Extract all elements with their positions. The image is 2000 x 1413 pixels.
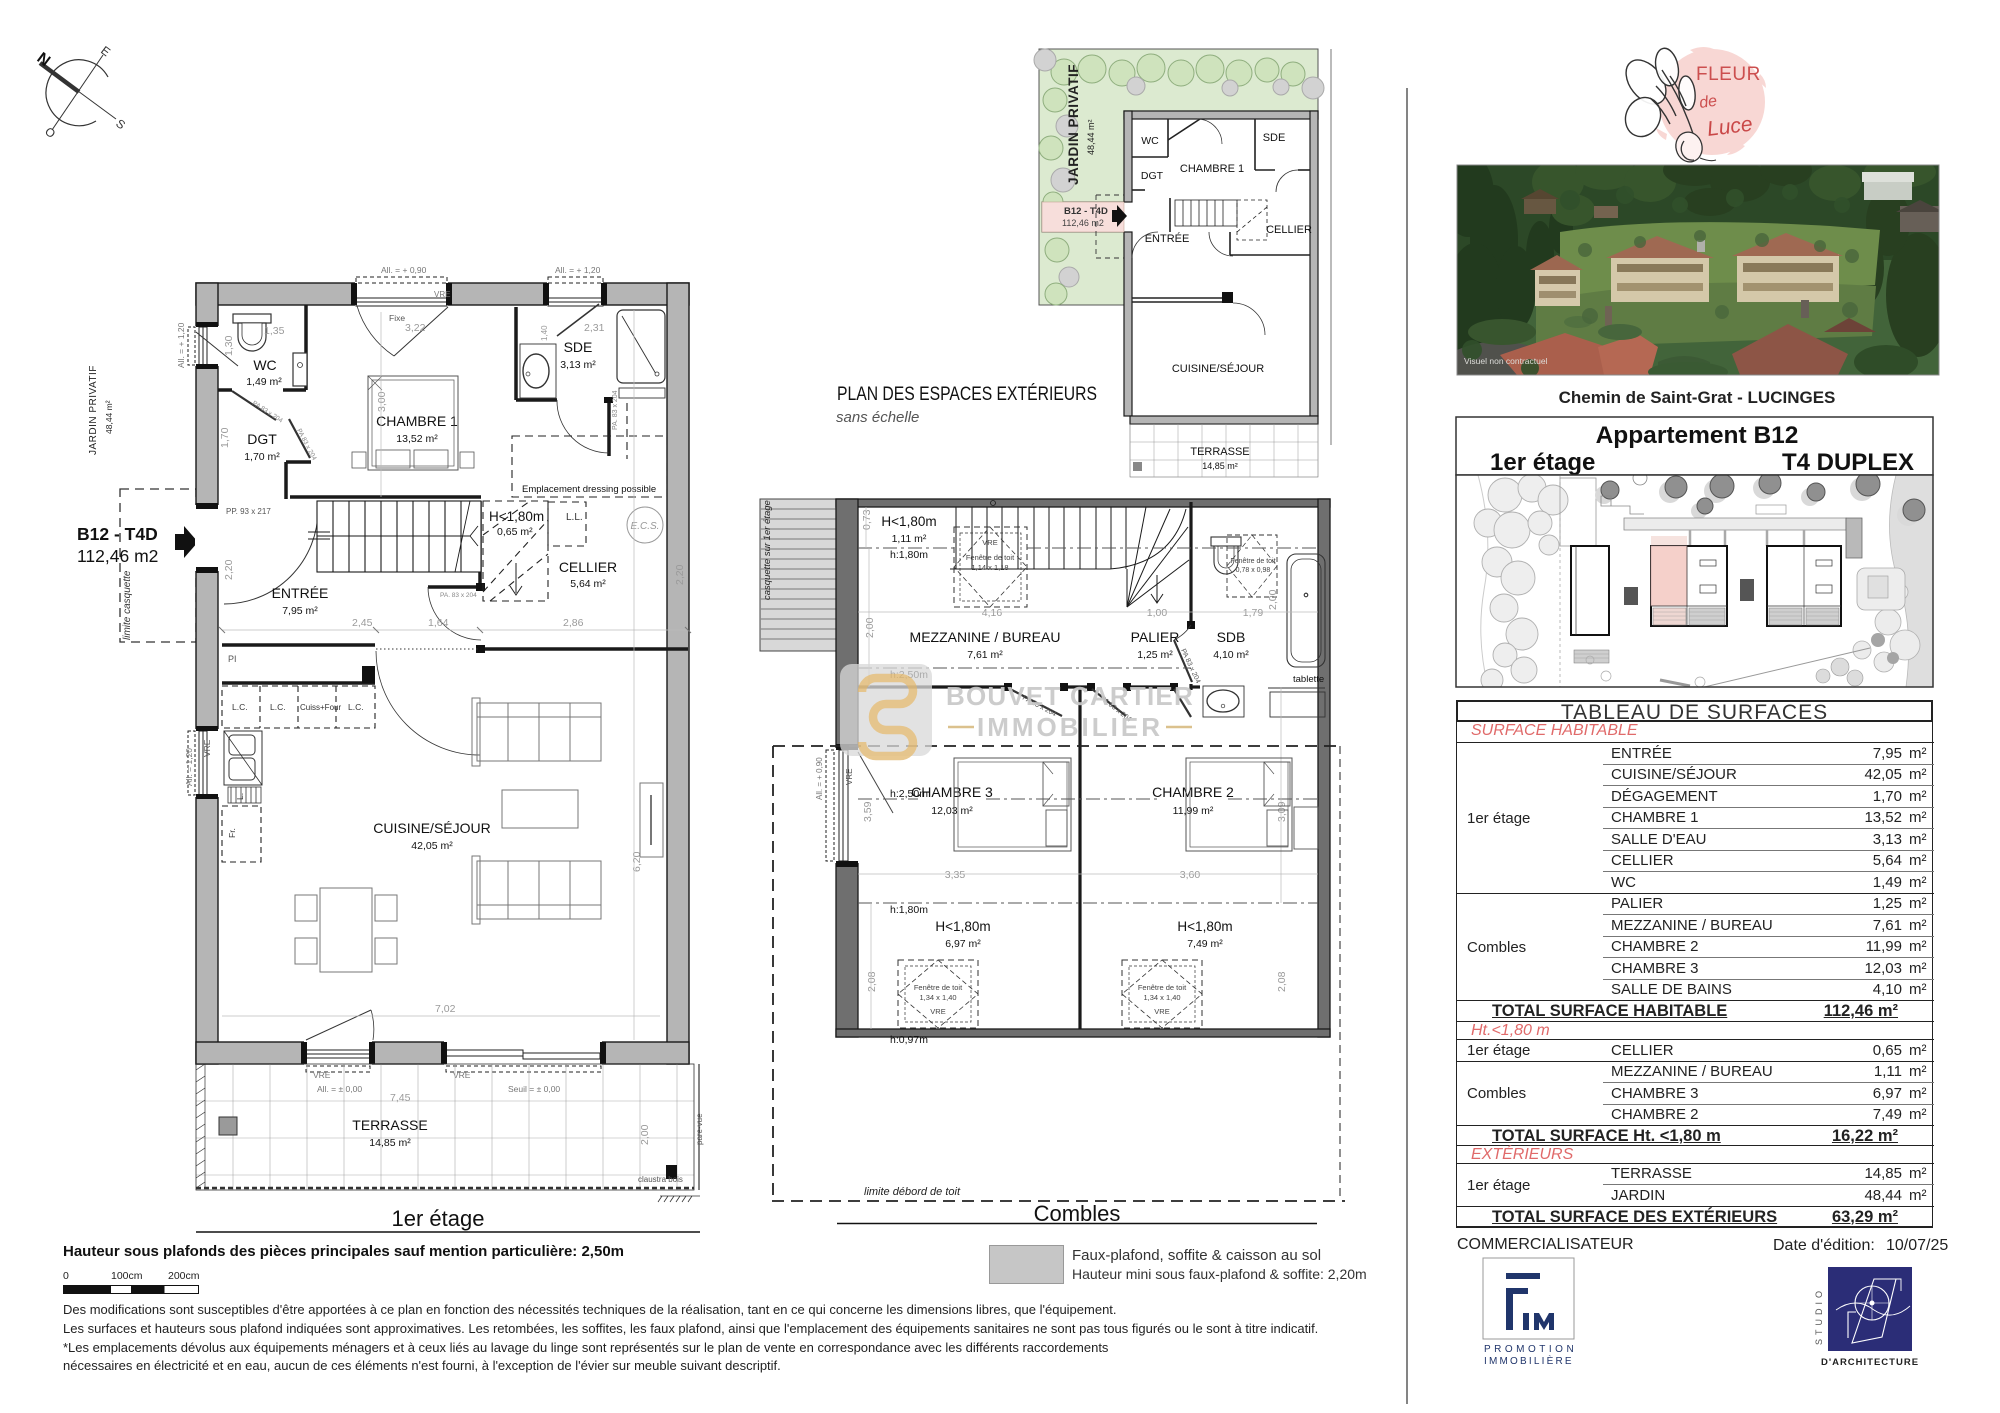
svg-text:CHAMBRE 2: CHAMBRE 2	[1152, 784, 1234, 800]
svg-text:48,44 m²: 48,44 m²	[104, 400, 114, 434]
svg-text:1,00: 1,00	[1147, 607, 1168, 619]
svg-text:Seuil = ± 0,00: Seuil = ± 0,00	[508, 1084, 560, 1094]
svg-text:DGT: DGT	[1141, 170, 1164, 182]
svg-text:Visuel non contractuel: Visuel non contractuel	[1464, 356, 1548, 366]
svg-text:All. = + 0,90: All. = + 0,90	[815, 757, 824, 800]
svg-text:0,78 x 0,98: 0,78 x 0,98	[1236, 567, 1271, 574]
svg-text:Emplacement dressing possible: Emplacement dressing possible	[522, 484, 656, 495]
svg-text:11,99 m²: 11,99 m²	[1173, 805, 1214, 817]
svg-text:2,31: 2,31	[584, 322, 605, 334]
svg-text:All. = + 1,20: All. = + 1,20	[555, 265, 601, 275]
svg-text:SDE: SDE	[564, 339, 593, 355]
svg-text:CELLIER: CELLIER	[559, 559, 617, 575]
svg-text:2,86: 2,86	[563, 617, 584, 629]
svg-text:L.: L.	[235, 793, 245, 800]
svg-text:12,03 m²: 12,03 m²	[931, 805, 973, 817]
svg-text:2,20: 2,20	[223, 559, 235, 580]
svg-text:PP. 93 x 217: PP. 93 x 217	[226, 507, 271, 516]
svg-text:h:0,97m: h:0,97m	[890, 1034, 928, 1046]
svg-text:Fenêtre de toit: Fenêtre de toit	[1230, 558, 1275, 565]
svg-text:1,25 m²: 1,25 m²	[1137, 649, 1173, 661]
svg-text:H<1,80m: H<1,80m	[881, 514, 936, 529]
svg-text:h:2,50m: h:2,50m	[890, 788, 928, 800]
svg-text:1,70: 1,70	[219, 427, 231, 448]
svg-text:VRE: VRE	[845, 769, 854, 785]
svg-text:L.C.: L.C.	[270, 702, 286, 712]
svg-text:3,35: 3,35	[945, 869, 966, 881]
svg-text:2,00: 2,00	[864, 617, 876, 638]
svg-text:T4 DUPLEX: T4 DUPLEX	[1782, 449, 1914, 476]
svg-text:PI: PI	[228, 654, 237, 664]
svg-text:H<1,80m: H<1,80m	[935, 919, 990, 934]
svg-text:tablette: tablette	[1293, 674, 1324, 685]
svg-text:PROMOTION: PROMOTION	[1484, 1344, 1577, 1355]
svg-text:2,00: 2,00	[1267, 589, 1279, 610]
svg-text:5,64 m²: 5,64 m²	[570, 578, 606, 590]
svg-text:CUISINE/SÉJOUR: CUISINE/SÉJOUR	[1172, 362, 1264, 375]
svg-text:MEZZANINE / BUREAU: MEZZANINE / BUREAU	[910, 629, 1061, 645]
svg-text:1,79: 1,79	[1243, 607, 1264, 619]
svg-text:3,60: 3,60	[1180, 869, 1201, 881]
svg-text:2,00: 2,00	[639, 1124, 651, 1145]
svg-text:Cuiss+Four: Cuiss+Four	[300, 703, 341, 712]
svg-text:3,00: 3,00	[376, 391, 388, 412]
svg-text:2,08: 2,08	[866, 971, 878, 992]
svg-text:VRE: VRE	[453, 1070, 471, 1080]
svg-text:VRE: VRE	[434, 290, 450, 299]
svg-text:COMMERCIALISATEUR: COMMERCIALISATEUR	[1457, 1236, 1634, 1253]
svg-text:L.C.: L.C.	[348, 702, 364, 712]
svg-text:N: N	[34, 50, 53, 71]
svg-text:h:1,80m: h:1,80m	[890, 904, 928, 916]
svg-text:1,70 m²: 1,70 m²	[244, 451, 280, 463]
svg-text:PA. 83 x 204: PA. 83 x 204	[612, 390, 619, 430]
svg-text:Fr.: Fr.	[227, 828, 237, 838]
svg-text:CELLIER: CELLIER	[1266, 224, 1312, 236]
svg-text:Chemin de Saint-Grat - LUCINGE: Chemin de Saint-Grat - LUCINGES	[1559, 388, 1836, 407]
svg-text:42,05 m²: 42,05 m²	[411, 840, 453, 852]
svg-text:TERRASSE: TERRASSE	[1190, 446, 1249, 458]
svg-text:H<1,80m: H<1,80m	[489, 509, 544, 524]
svg-text:112,46 m2: 112,46 m2	[77, 546, 158, 566]
svg-text:6,97 m²: 6,97 m²	[945, 938, 981, 950]
svg-text:1,35: 1,35	[264, 325, 285, 337]
svg-text:1,64: 1,64	[428, 617, 449, 629]
svg-text:de: de	[1698, 93, 1718, 112]
svg-text:Fenêtre de toit: Fenêtre de toit	[1138, 983, 1187, 992]
svg-text:112,46 m2: 112,46 m2	[1062, 218, 1104, 228]
svg-text:2,20: 2,20	[674, 564, 686, 585]
svg-text:2,45: 2,45	[352, 617, 373, 629]
svg-text:PA 83 x 204: PA 83 x 204	[251, 400, 284, 425]
svg-text:1,30: 1,30	[223, 335, 235, 356]
svg-text:pare-vue: pare-vue	[695, 1113, 704, 1145]
svg-text:3,22: 3,22	[405, 322, 426, 334]
svg-text:7,49 m²: 7,49 m²	[1187, 938, 1223, 950]
svg-text:CHAMBRE 1: CHAMBRE 1	[376, 413, 458, 429]
svg-text:7,61 m²: 7,61 m²	[967, 649, 1003, 661]
svg-text:L.C.: L.C.	[232, 702, 248, 712]
svg-text:3,59: 3,59	[862, 801, 874, 822]
svg-text:VRE: VRE	[202, 739, 212, 757]
svg-text:limite débord de toit: limite débord de toit	[864, 1186, 961, 1198]
svg-text:13,52 m²: 13,52 m²	[396, 433, 438, 445]
svg-text:1,34 x 1,40: 1,34 x 1,40	[919, 993, 956, 1002]
svg-text:E.C.S.: E.C.S.	[631, 521, 660, 532]
svg-text:B12 - T4D: B12 - T4D	[1064, 206, 1108, 217]
svg-text:O: O	[42, 124, 58, 141]
svg-text:casquette sur 1er étage: casquette sur 1er étage	[762, 500, 773, 600]
svg-text:0,65 m²: 0,65 m²	[497, 526, 533, 538]
svg-text:Fenêtre de toit: Fenêtre de toit	[966, 553, 1015, 562]
svg-text:All. = 1,20: All. = 1,20	[184, 748, 194, 786]
svg-text:Fixe: Fixe	[389, 313, 405, 323]
svg-text:B12 - T4D: B12 - T4D	[77, 524, 158, 544]
svg-text:claustra bois: claustra bois	[638, 1175, 683, 1184]
svg-text:Fenêtre de toit: Fenêtre de toit	[914, 983, 963, 992]
svg-text:DGT: DGT	[247, 431, 277, 447]
svg-text:VRE: VRE	[1154, 1007, 1169, 1016]
svg-text:h:1,80m: h:1,80m	[890, 549, 928, 561]
svg-text:2,08: 2,08	[1276, 971, 1288, 992]
svg-text:1,11 m²: 1,11 m²	[892, 533, 927, 545]
svg-text:4,10 m²: 4,10 m²	[1213, 649, 1249, 661]
svg-text:Combles: Combles	[1034, 1201, 1121, 1226]
svg-text:1er étage: 1er étage	[1490, 449, 1595, 476]
svg-text:4,16: 4,16	[982, 607, 1003, 619]
svg-text:TERRASSE: TERRASSE	[352, 1117, 427, 1133]
svg-text:limite casquette: limite casquette	[122, 570, 133, 640]
svg-text:0,73: 0,73	[861, 509, 873, 530]
svg-text:IMMOBILIER: IMMOBILIER	[977, 712, 1163, 742]
svg-text:CUISINE/SÉJOUR: CUISINE/SÉJOUR	[373, 820, 490, 836]
svg-text:FLEUR: FLEUR	[1696, 64, 1761, 85]
svg-text:IMMOBILIÈRE: IMMOBILIÈRE	[1484, 1354, 1574, 1367]
svg-text:PLAN DES ESPACES EXTÉRIEURS: PLAN DES ESPACES EXTÉRIEURS	[837, 384, 1097, 405]
svg-text:E: E	[98, 43, 113, 59]
svg-text:CHAMBRE 1: CHAMBRE 1	[1180, 163, 1244, 175]
svg-text:14,85 m²: 14,85 m²	[1202, 461, 1238, 471]
svg-text:VRE: VRE	[313, 1070, 331, 1080]
svg-text:1er étage: 1er étage	[392, 1206, 485, 1231]
svg-text:L.L.: L.L.	[566, 512, 583, 523]
svg-text:All. = ± 0,00: All. = ± 0,00	[317, 1084, 362, 1094]
svg-text:Date d'édition:: Date d'édition:	[1773, 1237, 1875, 1254]
svg-text:All. = + 1,20: All. = + 1,20	[176, 322, 186, 368]
svg-text:H<1,80m: H<1,80m	[1177, 919, 1232, 934]
svg-text:6,20: 6,20	[631, 851, 643, 872]
svg-text:BOUVET CARTIER: BOUVET CARTIER	[946, 681, 1194, 711]
svg-text:VRE: VRE	[982, 538, 997, 547]
svg-text:1,49 m²: 1,49 m²	[246, 376, 282, 388]
svg-text:SDB: SDB	[1217, 629, 1246, 645]
svg-text:PA. 83 x 204: PA. 83 x 204	[440, 592, 477, 599]
svg-text:Appartement B12: Appartement B12	[1596, 422, 1799, 449]
svg-text:1,40: 1,40	[540, 325, 549, 341]
svg-text:ENTRÉE: ENTRÉE	[1145, 232, 1190, 245]
svg-text:14,85 m²: 14,85 m²	[369, 1137, 411, 1149]
svg-text:3,09: 3,09	[1276, 801, 1288, 822]
svg-text:D'ARCHITECTURE: D'ARCHITECTURE	[1821, 1357, 1919, 1368]
svg-text:7,45: 7,45	[390, 1092, 411, 1104]
svg-text:WC: WC	[253, 357, 276, 373]
svg-text:1,14 x 1,18: 1,14 x 1,18	[971, 563, 1008, 572]
svg-text:VRE: VRE	[930, 1007, 945, 1016]
svg-text:48,44 m²: 48,44 m²	[1086, 119, 1096, 155]
svg-text:PALIER: PALIER	[1131, 629, 1180, 645]
svg-text:All. = + 0,90: All. = + 0,90	[381, 265, 427, 275]
svg-text:STUDIO: STUDIO	[1814, 1287, 1824, 1345]
svg-text:7,02: 7,02	[435, 1003, 456, 1015]
svg-text:3,13 m²: 3,13 m²	[560, 359, 596, 371]
svg-text:JARDIN PRIVATIF: JARDIN PRIVATIF	[1066, 64, 1081, 185]
svg-text:JARDIN PRIVATIF: JARDIN PRIVATIF	[88, 365, 99, 455]
svg-text:10/07/25: 10/07/25	[1886, 1237, 1948, 1254]
svg-text:WC: WC	[1141, 135, 1159, 147]
svg-text:ENTRÉE: ENTRÉE	[272, 585, 329, 601]
svg-text:sans échelle: sans échelle	[836, 409, 919, 426]
svg-text:7,95 m²: 7,95 m²	[282, 605, 318, 617]
svg-text:SDE: SDE	[1263, 132, 1286, 144]
svg-text:1,34 x 1,40: 1,34 x 1,40	[1143, 993, 1180, 1002]
svg-text:PA 83 x 204: PA 83 x 204	[295, 428, 318, 462]
